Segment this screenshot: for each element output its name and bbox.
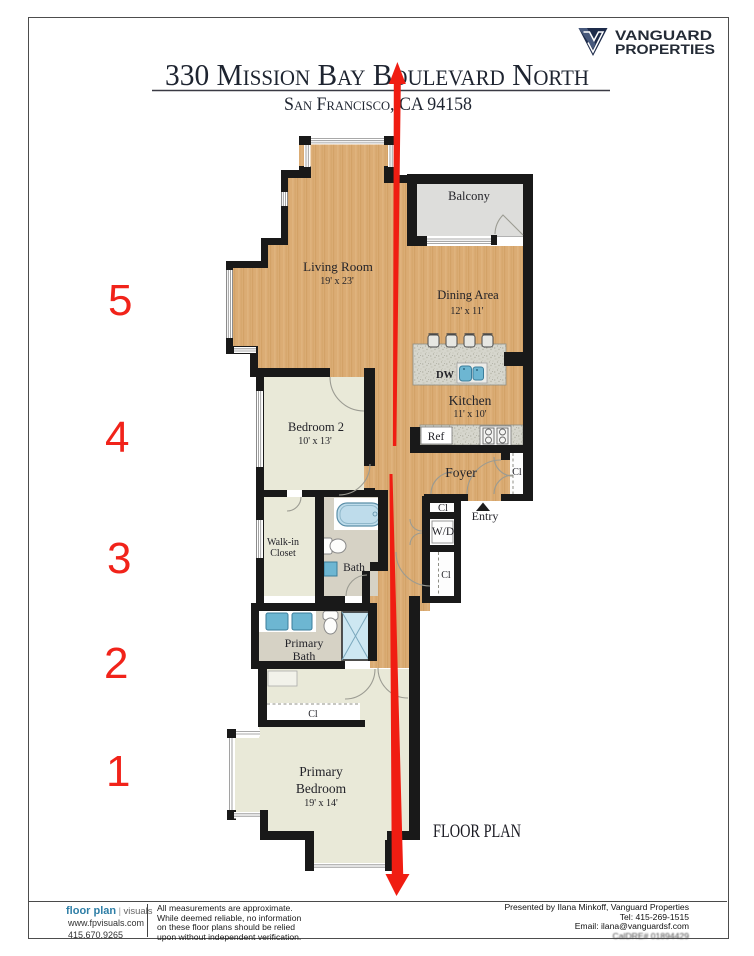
svg-text:FLOOR PLAN: FLOOR PLAN (433, 821, 521, 842)
svg-text:5: 5 (108, 276, 132, 325)
svg-text:1: 1 (106, 747, 130, 796)
svg-text:Living Room: Living Room (303, 259, 373, 274)
svg-text:W/D: W/D (432, 526, 454, 538)
svg-text:19' x 14': 19' x 14' (304, 798, 338, 809)
svg-text:3: 3 (107, 534, 131, 583)
svg-text:Primary: Primary (285, 636, 324, 650)
svg-text:4: 4 (105, 413, 129, 462)
svg-text:10' x 13': 10' x 13' (298, 436, 332, 447)
svg-text:Cl: Cl (438, 503, 448, 514)
svg-text:Bedroom 2: Bedroom 2 (288, 420, 344, 434)
svg-text:Cl: Cl (512, 467, 522, 478)
svg-text:Cl: Cl (441, 570, 451, 581)
svg-text:Cl: Cl (308, 709, 318, 720)
svg-text:11' x 10': 11' x 10' (453, 409, 486, 420)
svg-text:Bath: Bath (293, 649, 316, 663)
svg-text:Ref: Ref (428, 431, 445, 443)
svg-text:Dining Area: Dining Area (437, 288, 499, 302)
svg-text:Entry: Entry (472, 509, 499, 523)
svg-text:Primary: Primary (299, 764, 343, 779)
svg-text:Closet: Closet (270, 548, 296, 559)
svg-text:Bath: Bath (343, 562, 365, 574)
svg-text:12' x 11': 12' x 11' (450, 306, 483, 317)
svg-text:2: 2 (104, 639, 128, 688)
svg-text:19' x 23': 19' x 23' (320, 276, 354, 287)
svg-text:Kitchen: Kitchen (449, 393, 492, 408)
svg-text:DW: DW (436, 370, 455, 381)
svg-text:Walk-in: Walk-in (267, 537, 299, 548)
svg-text:Balcony: Balcony (448, 189, 490, 203)
svg-text:Bedroom: Bedroom (296, 781, 347, 796)
svg-text:Foyer: Foyer (445, 465, 477, 480)
